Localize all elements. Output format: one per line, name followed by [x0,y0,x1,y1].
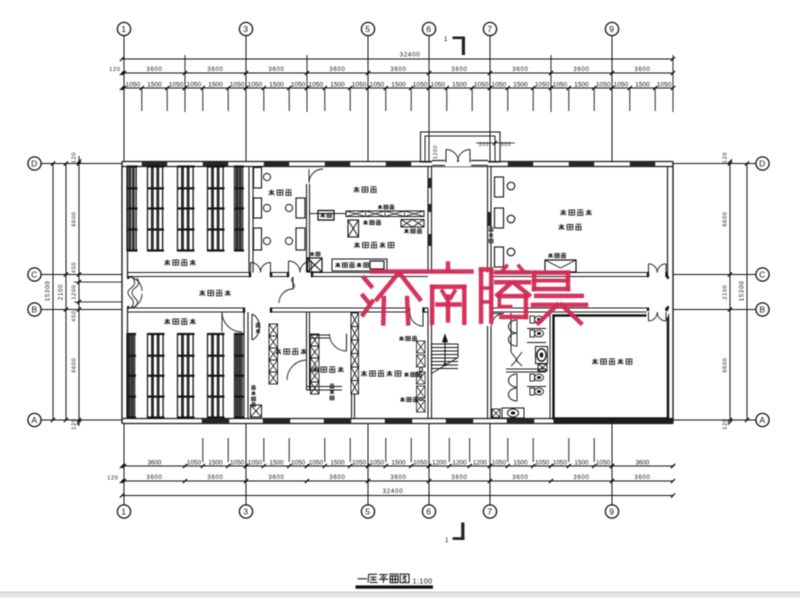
svg-text:3600: 3600 [451,475,467,481]
svg-text:2100: 2100 [59,284,65,300]
svg-text:6: 6 [426,506,431,516]
svg-text:1500: 1500 [574,81,589,88]
svg-text:1050: 1050 [370,459,385,466]
svg-text:1200: 1200 [432,459,447,466]
svg-text:1500: 1500 [513,81,528,88]
svg-text:1050: 1050 [614,81,629,88]
svg-text:A: A [759,415,765,425]
svg-text:1050: 1050 [309,81,324,88]
svg-text:6600: 6600 [72,357,78,372]
svg-text:1050: 1050 [352,81,367,88]
svg-text:1500: 1500 [452,81,467,88]
svg-text:1050: 1050 [126,81,141,88]
svg-text:1050: 1050 [535,81,550,88]
svg-text:1050: 1050 [413,459,428,466]
svg-text:D: D [759,159,766,169]
svg-text:1500: 1500 [147,81,162,88]
svg-text:1500: 1500 [208,81,223,88]
svg-text:3600: 3600 [146,67,162,73]
svg-text:1050: 1050 [352,459,367,466]
svg-text:1050: 1050 [474,81,489,88]
svg-text:15300: 15300 [45,281,52,302]
svg-text:1050: 1050 [535,459,550,466]
svg-text:1:100: 1:100 [413,577,433,586]
svg-text:5: 5 [365,506,370,516]
svg-text:5: 5 [365,24,370,34]
svg-text:3600: 3600 [207,67,223,73]
svg-text:3600: 3600 [207,475,223,481]
svg-text:1200: 1200 [72,284,78,299]
svg-text:1500: 1500 [208,459,223,466]
svg-text:3600: 3600 [390,67,406,73]
svg-text:1050: 1050 [248,459,263,466]
svg-text:3600: 3600 [146,475,162,481]
svg-text:1500: 1500 [391,459,406,466]
svg-text:3600: 3600 [512,475,528,481]
svg-text:1050: 1050 [291,459,306,466]
svg-text:3600: 3600 [148,459,162,466]
svg-text:1500: 1500 [269,81,284,88]
svg-text:450: 450 [72,310,78,321]
svg-text:32400: 32400 [383,488,404,495]
svg-text:1050: 1050 [370,81,385,88]
svg-text:7: 7 [487,24,492,34]
svg-text:32400: 32400 [400,52,421,59]
svg-text:1500: 1500 [269,459,284,466]
svg-text:B: B [759,305,765,315]
svg-text:6600: 6600 [723,357,729,372]
svg-text:6600: 6600 [723,211,729,226]
svg-text:450: 450 [72,262,78,273]
svg-text:1500: 1500 [513,459,528,466]
svg-text:1050: 1050 [492,81,507,88]
svg-text:120: 120 [109,67,120,73]
svg-text:7: 7 [487,506,492,516]
svg-text:1050: 1050 [657,81,672,88]
svg-text:1050: 1050 [187,81,202,88]
svg-text:3600: 3600 [634,475,650,481]
svg-text:3: 3 [243,24,248,34]
svg-text:1050: 1050 [291,81,306,88]
svg-text:1: 1 [445,537,449,544]
svg-text:1050: 1050 [413,81,428,88]
svg-text:1: 1 [121,24,126,34]
svg-text:120: 120 [72,152,78,163]
svg-text:1050: 1050 [492,459,507,466]
svg-text:9: 9 [609,24,614,34]
svg-text:1050: 1050 [230,81,245,88]
svg-text:120: 120 [723,152,729,163]
svg-text:3600: 3600 [512,67,528,73]
svg-text:A: A [31,415,37,425]
svg-text:B: B [31,305,37,315]
svg-text:3600: 3600 [329,67,345,73]
svg-text:1200: 1200 [433,145,439,159]
svg-text:3600: 3600 [634,67,650,73]
svg-text:3600: 3600 [636,459,650,466]
svg-text:3600: 3600 [329,475,345,481]
svg-text:3600: 3600 [268,475,284,481]
svg-text:3600: 3600 [390,475,406,481]
svg-text:3: 3 [243,506,248,516]
svg-text:1050: 1050 [169,81,184,88]
svg-text:1500: 1500 [635,81,650,88]
svg-text:1050: 1050 [309,459,324,466]
svg-text:1050: 1050 [230,459,245,466]
svg-text:1050: 1050 [431,81,446,88]
svg-text:3600: 3600 [451,67,467,73]
svg-text:1050: 1050 [596,81,611,88]
svg-text:1500: 1500 [330,459,345,466]
svg-text:3600: 3600 [573,67,589,73]
svg-text:1050: 1050 [187,459,202,466]
svg-text:1050: 1050 [553,81,568,88]
svg-text:1050: 1050 [248,81,263,88]
svg-text:1200: 1200 [473,459,488,466]
svg-text:1: 1 [444,36,448,43]
svg-text:2100: 2100 [723,284,729,299]
svg-text:C: C [31,270,38,280]
svg-text:1050: 1050 [596,459,611,466]
svg-text:3600: 3600 [268,67,284,73]
svg-text:1050: 1050 [553,459,568,466]
svg-text:D: D [31,159,38,169]
svg-text:1500: 1500 [330,81,345,88]
svg-text:3600: 3600 [573,475,589,481]
svg-text:6600: 6600 [72,211,78,226]
svg-text:1200: 1200 [452,459,467,466]
svg-text:120: 120 [107,476,118,482]
svg-text:C: C [759,270,766,280]
svg-text:1500: 1500 [391,81,406,88]
svg-text:15300: 15300 [739,281,746,302]
svg-text:1500: 1500 [574,459,589,466]
svg-text:1: 1 [121,506,126,516]
svg-text:6: 6 [426,24,431,34]
svg-text:9: 9 [609,506,614,516]
